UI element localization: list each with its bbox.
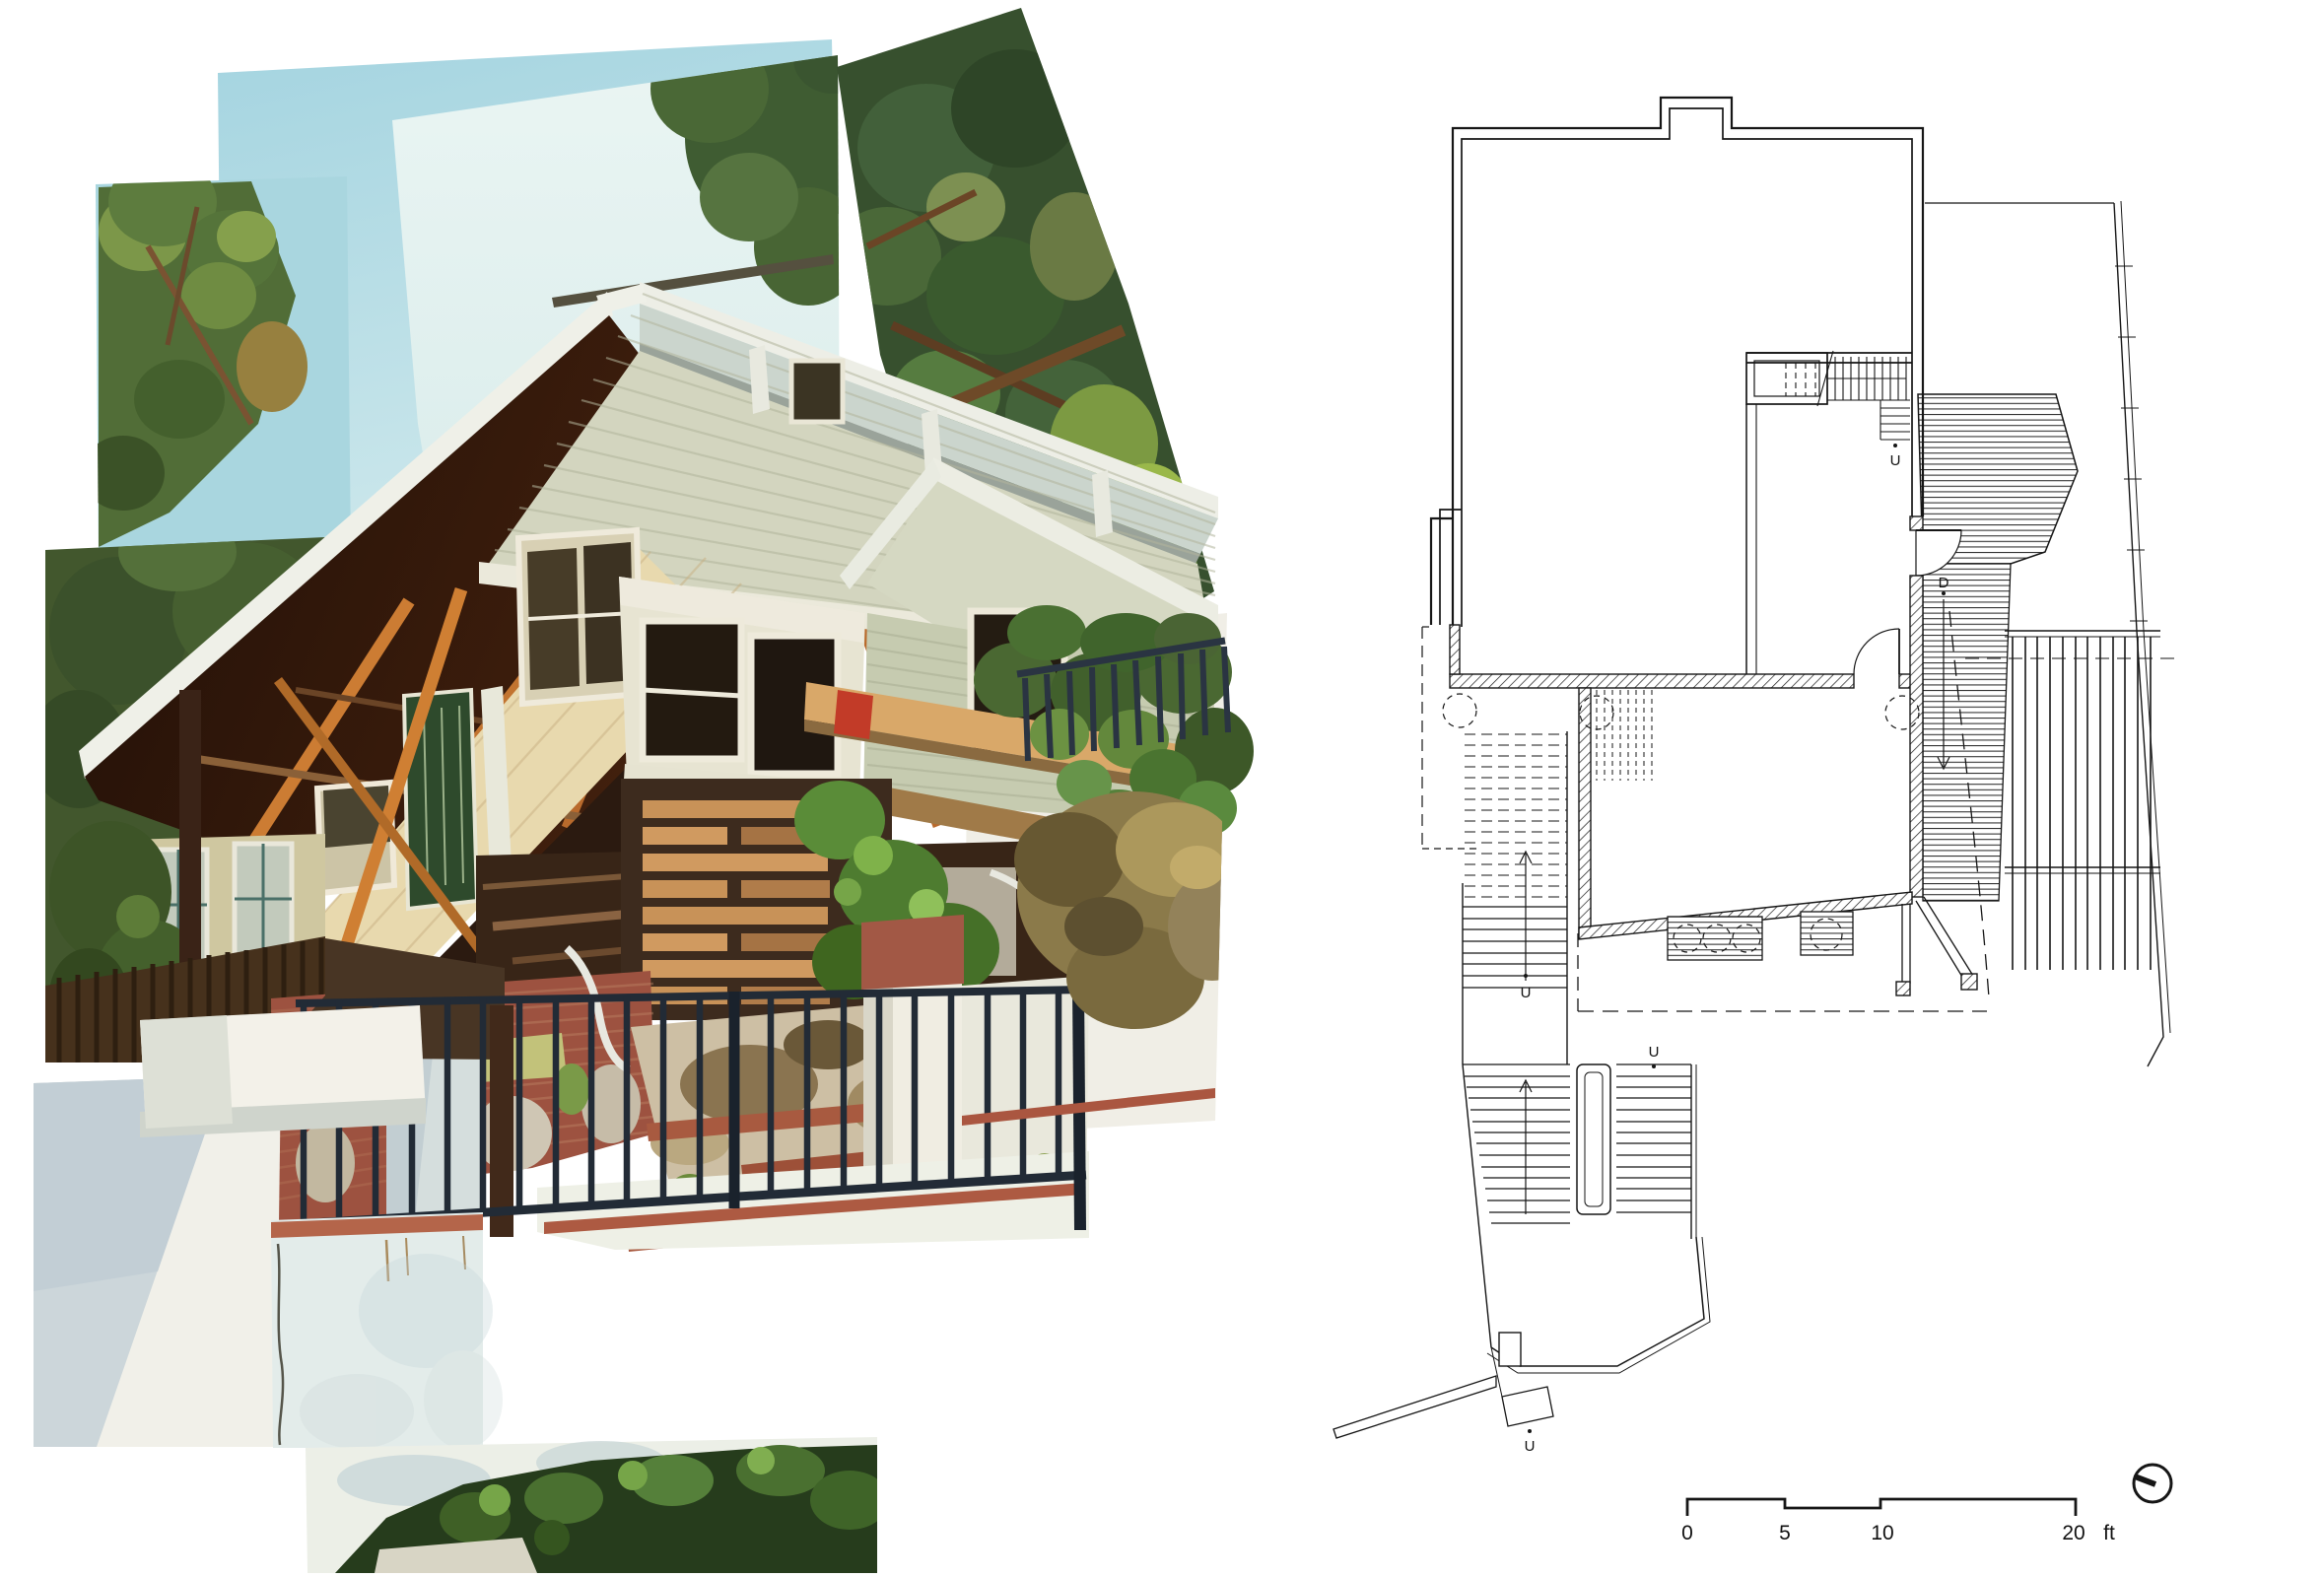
svg-text:U: U (1521, 985, 1532, 1001)
svg-text:D: D (1939, 575, 1949, 591)
svg-text:5: 5 (1779, 1522, 1791, 1544)
svg-text:20: 20 (2062, 1522, 2085, 1544)
svg-text:U: U (1649, 1044, 1660, 1061)
svg-text:0: 0 (1681, 1522, 1693, 1544)
svg-text:U: U (1890, 452, 1901, 469)
svg-text:ft: ft (2103, 1522, 2115, 1544)
svg-text:U: U (1525, 1438, 1536, 1455)
svg-text:10: 10 (1871, 1522, 1893, 1544)
